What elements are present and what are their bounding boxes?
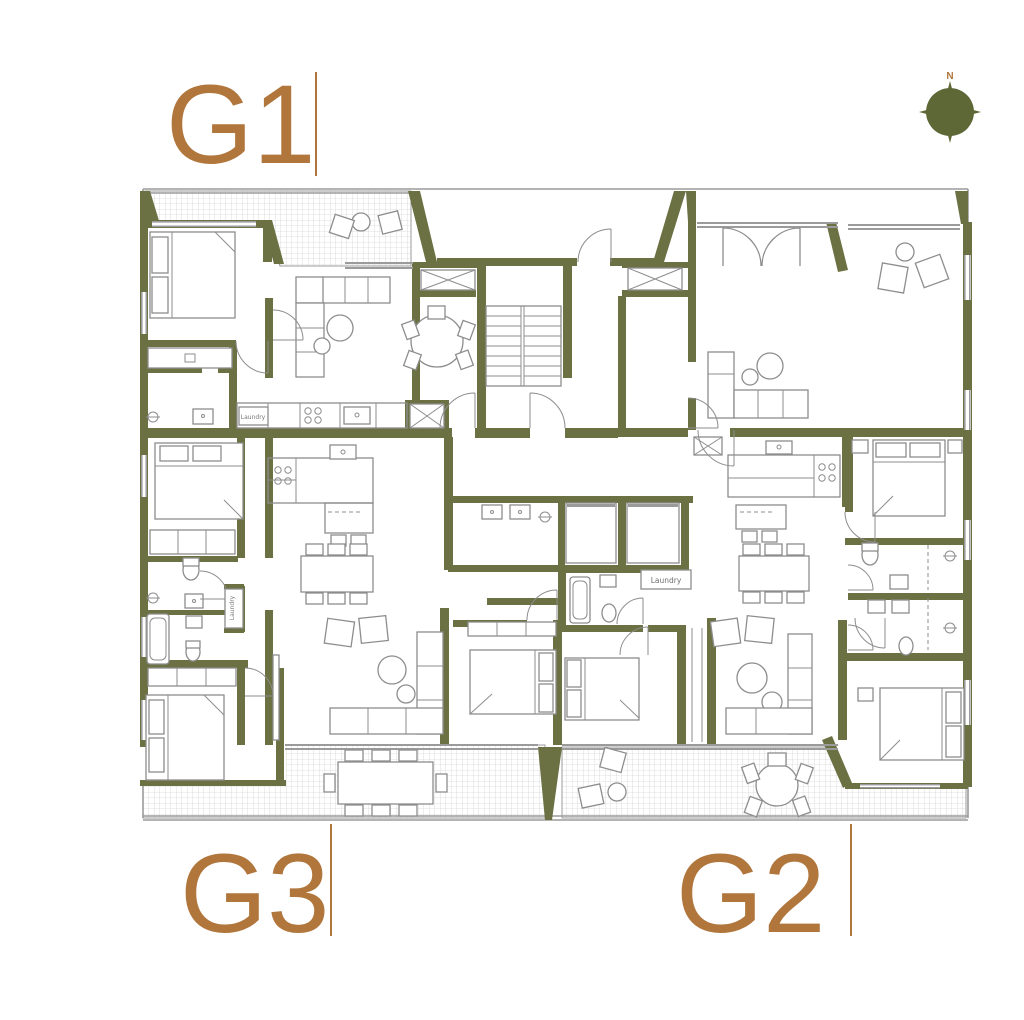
bath2-g2 bbox=[868, 598, 957, 655]
floor-plan-drawing: Laundry Laundry Laundry G1 G3 G2 N bbox=[0, 0, 1024, 1020]
unit-line-g2 bbox=[850, 824, 852, 936]
laundry-box-g3: Laundry bbox=[225, 589, 243, 628]
compass: N bbox=[919, 71, 981, 143]
unit-line-g3 bbox=[330, 824, 332, 936]
elevator-left bbox=[421, 270, 475, 290]
bed-g2-upper bbox=[852, 440, 962, 516]
window bbox=[848, 224, 960, 230]
bath-tub-center bbox=[570, 575, 616, 623]
bed-g1 bbox=[150, 232, 235, 318]
living-g2-lower bbox=[710, 616, 812, 734]
window bbox=[152, 221, 256, 227]
wardrobe-g1 bbox=[148, 348, 232, 368]
window bbox=[141, 292, 147, 334]
wardrobe-g3 bbox=[150, 530, 235, 554]
laundry-box-g1: Laundry bbox=[239, 407, 268, 425]
dining-g2 bbox=[739, 544, 809, 603]
window bbox=[964, 680, 971, 725]
laundry-label-g1: Laundry bbox=[241, 414, 266, 421]
floor-plan-page: Laundry Laundry Laundry G1 G3 G2 N bbox=[0, 0, 1024, 1020]
duct-xbox bbox=[694, 437, 722, 455]
bed-g3-lower bbox=[146, 668, 236, 780]
laundry-box-center: Laundry bbox=[641, 570, 691, 589]
light-shaft-2 bbox=[627, 503, 679, 563]
kitchen-g3 bbox=[268, 445, 373, 546]
bed-g2-lower bbox=[858, 688, 964, 760]
unit-label-g2: G2 bbox=[676, 831, 825, 956]
compass-north-label: N bbox=[946, 71, 953, 82]
dining-g3 bbox=[301, 544, 373, 604]
unit-label-g3: G3 bbox=[180, 831, 329, 956]
window bbox=[697, 222, 838, 228]
furniture-g2 bbox=[578, 228, 964, 817]
window bbox=[964, 390, 971, 430]
closet-strip bbox=[692, 628, 702, 742]
window bbox=[964, 520, 971, 560]
window bbox=[860, 784, 940, 788]
sitting-set-g2 bbox=[878, 243, 949, 293]
bath-two-sinks bbox=[482, 505, 552, 522]
bath2-g3 bbox=[147, 614, 202, 664]
living-g3 bbox=[273, 616, 443, 740]
compass-circle bbox=[926, 88, 974, 136]
window bbox=[141, 617, 147, 657]
furniture-center bbox=[468, 505, 702, 742]
bath1-g3 bbox=[146, 558, 203, 608]
unit-label-g1: G1 bbox=[166, 62, 315, 187]
unit-line-g1 bbox=[315, 72, 317, 176]
window bbox=[141, 455, 147, 497]
bath1-g2 bbox=[862, 543, 957, 590]
double-door-g2 bbox=[723, 228, 800, 266]
elevator-right bbox=[628, 268, 682, 290]
sofa-g2-upper bbox=[708, 352, 808, 418]
light-shaft-1 bbox=[566, 503, 616, 563]
bed-c bbox=[470, 650, 556, 714]
kitchen-g2 bbox=[728, 441, 840, 542]
laundry-label-center: Laundry bbox=[651, 576, 682, 585]
bed-d bbox=[565, 658, 639, 720]
bath-g1 bbox=[146, 409, 213, 424]
window bbox=[964, 255, 971, 300]
stairwell bbox=[486, 306, 561, 386]
closet-bed-c bbox=[468, 622, 556, 636]
laundry-label-g3: Laundry bbox=[229, 595, 236, 620]
bed-g3-upper bbox=[155, 443, 243, 519]
